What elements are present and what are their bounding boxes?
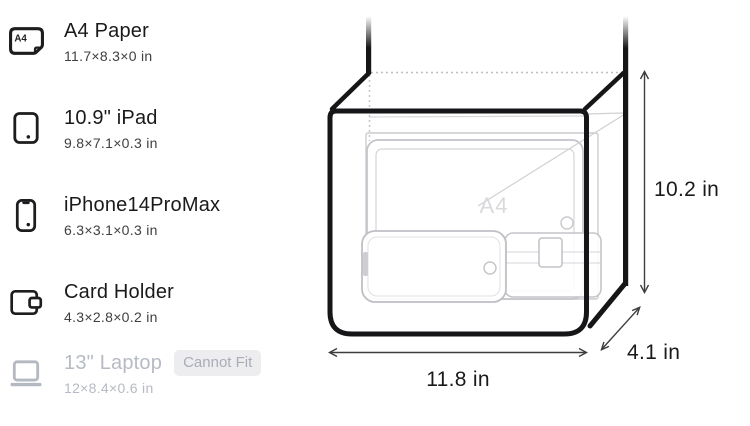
a4-watermark: A4 [480,193,509,218]
bag-top-right-slant-edge [585,73,624,109]
bag-top-left-slant-edge [332,73,369,109]
bag-back-left-edge [366,16,371,74]
bag-back-right-edge [623,16,628,286]
ghost-iphone [362,231,506,302]
depth-dimension-label: 4.1 in [627,341,680,364]
bag-dimension-diagram: A4 [0,0,750,426]
width-dimension-label: 11.8 in [426,368,490,391]
height-dimension-label: 10.2 in [654,178,719,201]
bag-fit-infographic: A4 A4 Paper 11.7×8.3×0 in 10.9" iPad [0,0,750,426]
